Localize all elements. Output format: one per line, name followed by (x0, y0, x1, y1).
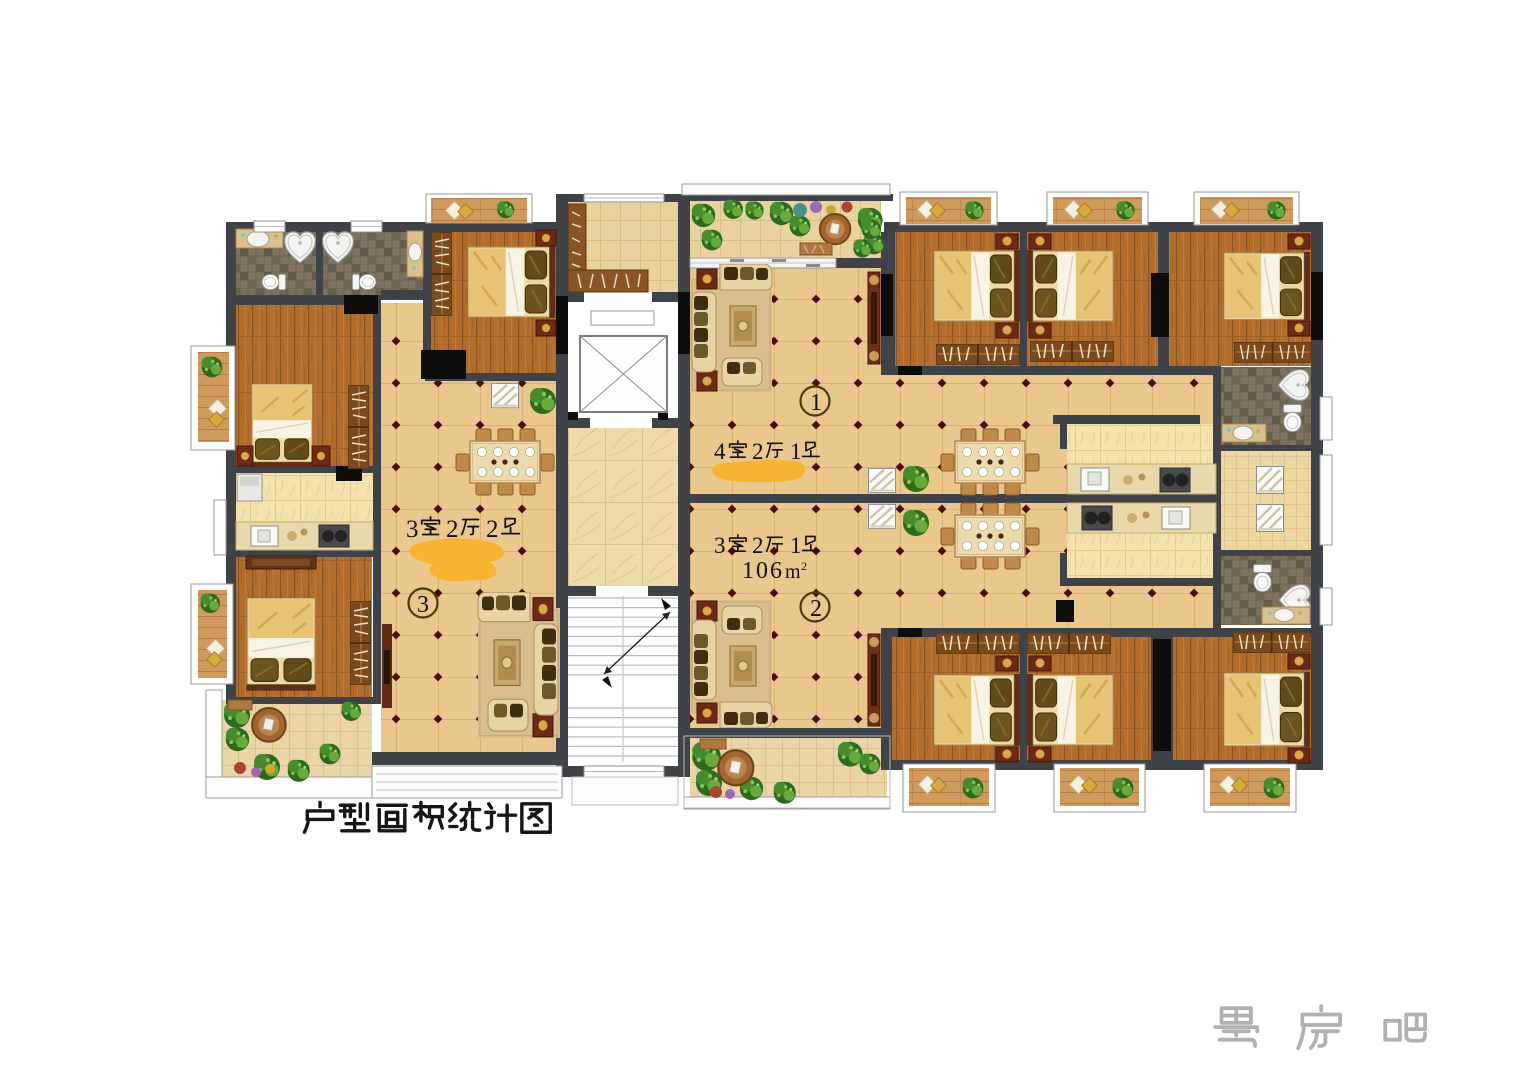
svg-text:1: 1 (790, 533, 802, 558)
svg-text:3: 3 (406, 516, 419, 543)
svg-text:2: 2 (801, 559, 807, 573)
svg-text:106: 106 (742, 558, 784, 584)
svg-text:m: m (785, 561, 801, 583)
svg-text:3: 3 (714, 533, 726, 558)
svg-text:2: 2 (752, 533, 764, 558)
svg-text:4: 4 (714, 439, 726, 464)
svg-text:1: 1 (790, 439, 802, 464)
svg-text:2: 2 (810, 596, 822, 622)
svg-text:1: 1 (810, 390, 822, 416)
svg-text:2: 2 (486, 516, 499, 543)
svg-text:3: 3 (417, 592, 429, 618)
